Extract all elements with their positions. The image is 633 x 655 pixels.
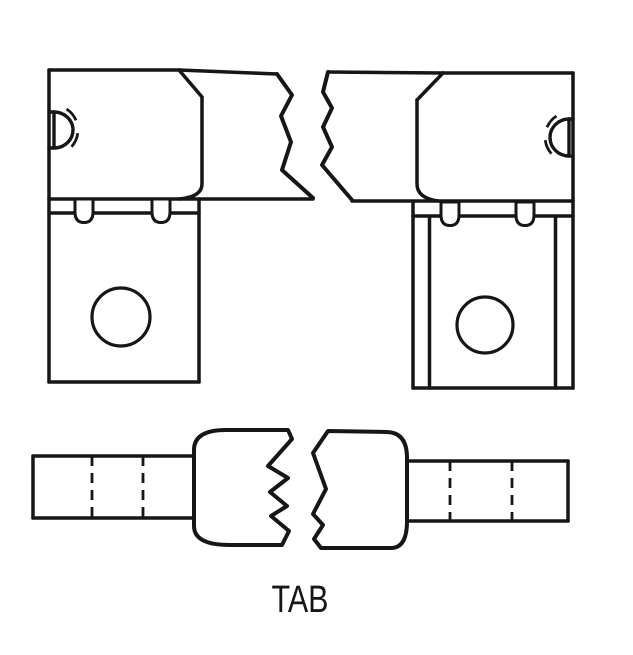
strip-top-edge-line — [179, 70, 277, 74]
terminal-side-view-left — [33, 430, 292, 545]
mounting-hole-circle — [457, 297, 513, 353]
insulation-barrel-outline — [313, 431, 407, 548]
terminal-top-view-right — [322, 72, 573, 388]
blade-left-edge-line — [417, 100, 438, 201]
crimp-serration-bump — [152, 199, 170, 223]
terminal-top-view-left — [49, 70, 313, 382]
crimp-serration-bump — [441, 202, 459, 226]
drawing-root: TAB — [33, 70, 573, 621]
figure-canvas: TAB — [0, 0, 633, 655]
break-zigzag-line — [322, 72, 352, 200]
blade-chamfer-line — [417, 73, 443, 100]
crimp-serration-bump — [516, 202, 534, 226]
mounting-hole-circle — [92, 288, 150, 346]
strip-top-edge-line — [328, 72, 443, 73]
tab-terminal-diagram: TAB — [0, 0, 633, 655]
dimple-semicircle — [550, 119, 569, 156]
crimp-serration-bump — [75, 199, 93, 223]
dimple-semicircle — [54, 112, 73, 148]
blade-chamfer-line — [179, 70, 202, 97]
terminal-side-view-right — [313, 431, 568, 548]
break-zigzag-line — [277, 74, 313, 198]
blade-right-edge-line — [179, 97, 202, 199]
insulation-barrel-outline — [194, 430, 292, 545]
figure-caption: TAB — [272, 579, 329, 621]
